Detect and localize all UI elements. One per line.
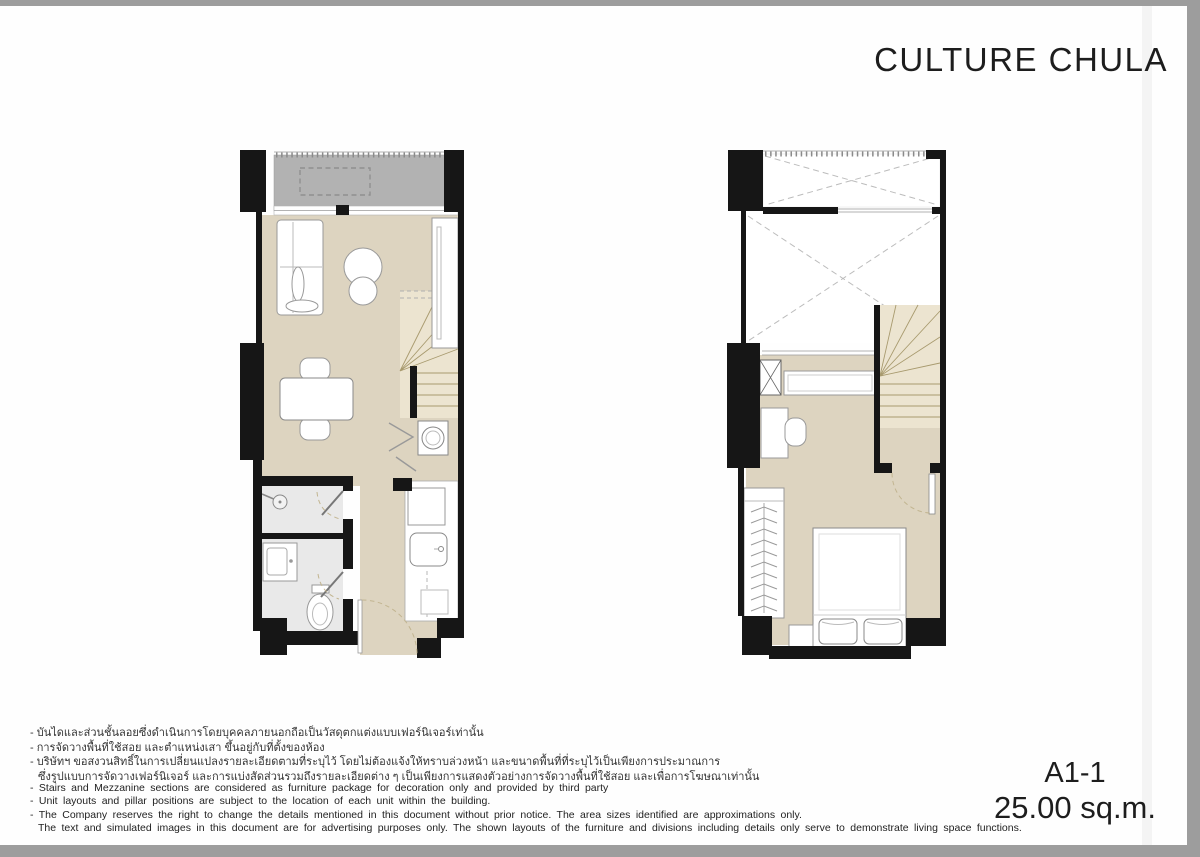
balcony xyxy=(274,152,458,211)
lower-floor-plan xyxy=(236,141,468,661)
disclaimer-thai: - บันไดและส่วนชั้นลอยซึ่งดำเนินการโดยบุค… xyxy=(30,726,759,784)
unit-info: A1-1 25.00 sq.m. xyxy=(994,756,1156,826)
round-stool-icon xyxy=(349,277,377,305)
unit-code: A1-1 xyxy=(994,756,1156,790)
void-above-balcony xyxy=(763,151,940,207)
stove-icon xyxy=(408,488,445,525)
kitchen-counter xyxy=(405,481,458,621)
disclaimer-english: - Stairs and Mezzanine sections are cons… xyxy=(30,782,1022,836)
disclaimer-line: - Unit layouts and pillar positions are … xyxy=(30,795,1022,808)
entrance-door-icon xyxy=(358,600,362,653)
kitchen-sink-icon xyxy=(410,533,447,566)
wardrobe-icon xyxy=(744,488,784,618)
sofa-icon xyxy=(277,220,323,315)
paper-edge-shadow xyxy=(1142,6,1152,845)
disclaimer-line: - The Company reserves the right to chan… xyxy=(30,809,1022,822)
nightstand-icon xyxy=(789,625,813,648)
void-window xyxy=(838,209,932,212)
shaft-box-icon xyxy=(760,360,781,395)
disclaimer-line: The text and simulated images in this do… xyxy=(30,822,1022,835)
viewer-top-margin xyxy=(0,0,1200,6)
unit-area: 25.00 sq.m. xyxy=(994,790,1156,826)
tall-cabinet-icon xyxy=(432,218,458,348)
paper-background xyxy=(0,6,1187,845)
disclaimer-line: - Stairs and Mezzanine sections are cons… xyxy=(30,782,1022,795)
project-title: CULTURE CHULA xyxy=(874,40,1168,80)
disclaimer-line: - บริษัทฯ ขอสงวนสิทธิ์ในการเปลี่ยนแปลงรา… xyxy=(30,755,759,770)
sliding-door xyxy=(274,205,458,215)
stairs xyxy=(880,305,940,428)
disclaimer-line: - บันไดและส่วนชั้นลอยซึ่งดำเนินการโดยบุค… xyxy=(30,726,759,741)
mezzanine-edge xyxy=(762,351,876,355)
washing-machine-icon xyxy=(418,421,448,455)
bathroom xyxy=(262,486,343,631)
brochure-page: CULTURE CHULA xyxy=(0,0,1200,857)
door-leaf-icon xyxy=(929,474,935,514)
shelf-icon xyxy=(784,371,876,395)
disclaimer-line: - การจัดวางพื้นที่ใช้สอย และตำแหน่งเสา ข… xyxy=(30,741,759,756)
bed-icon xyxy=(813,528,906,648)
mezzanine-floor-plan xyxy=(718,141,950,661)
